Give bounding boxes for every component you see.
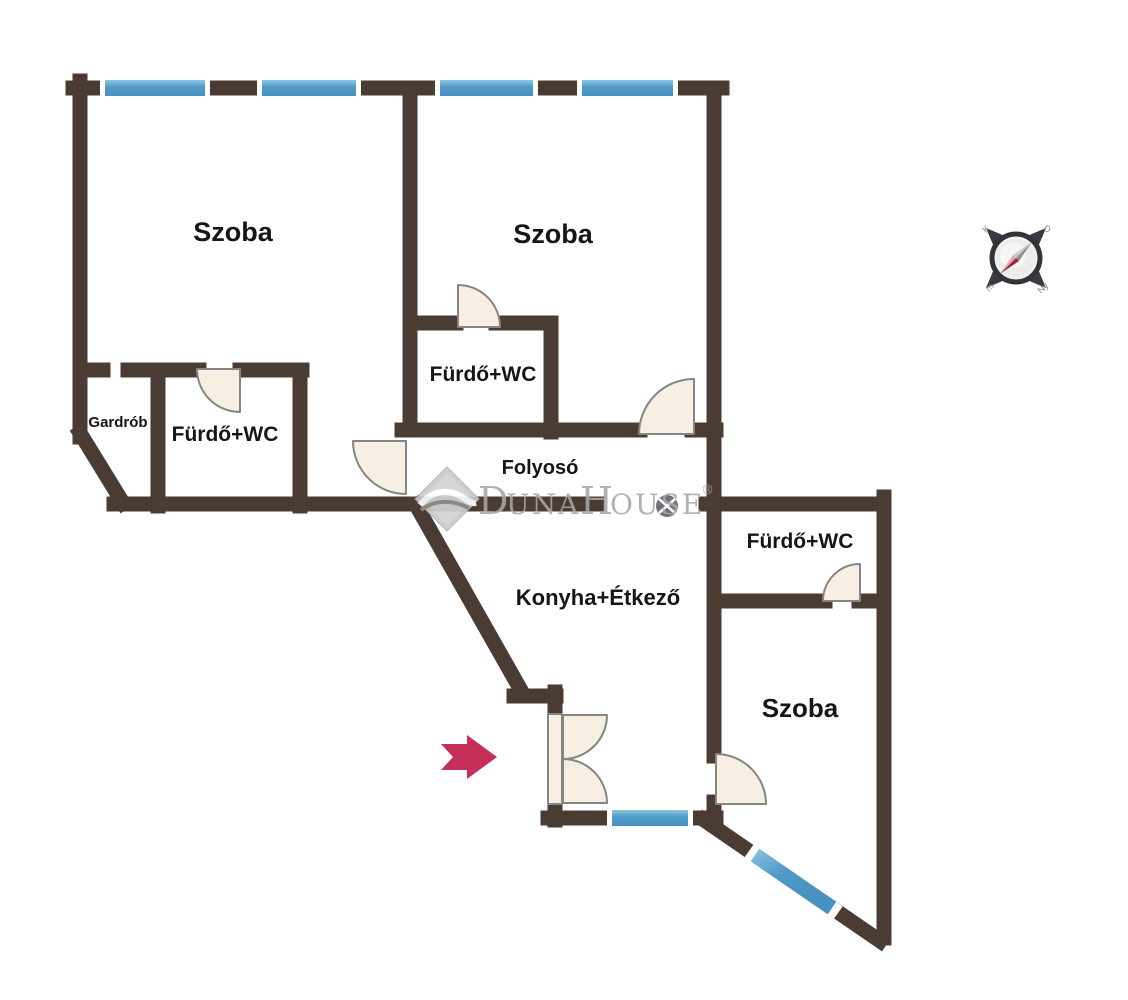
svg-text:®: ® (701, 483, 716, 498)
window (440, 80, 533, 96)
room-label-konyha: Konyha+Étkező (516, 585, 680, 610)
floor-plan: D UNA H OUSE ® Szoba Szoba Fürdő+WC Gard… (0, 0, 1128, 1000)
door-swing-szoba-1 (353, 441, 406, 494)
window (262, 80, 356, 96)
room-label-folyoso: Folyosó (502, 457, 579, 479)
svg-text:UNA: UNA (506, 488, 580, 521)
room-label-furdo-middle: Fürdő+WC (430, 363, 537, 386)
compass-letter-sw: É (984, 282, 995, 293)
compass-icon: K D É Ny (980, 223, 1053, 295)
room-label-szoba-3: Szoba (762, 693, 839, 723)
door-swing-bath-middle (458, 285, 500, 327)
floor-plan-page: D UNA H OUSE ® Szoba Szoba Fürdő+WC Gard… (0, 0, 1128, 1000)
entrance-arrow-icon (441, 735, 497, 779)
door-swing-szoba-2 (639, 379, 694, 434)
door-swing-bath-right (823, 564, 860, 601)
window (582, 80, 673, 96)
room-label-furdo-left: Fürdő+WC (172, 423, 279, 446)
room-label-szoba-2: Szoba (513, 219, 593, 249)
entrance-door-swing-top (563, 715, 607, 759)
svg-text:OUSE: OUSE (610, 488, 704, 521)
window (612, 810, 688, 826)
entrance-door-leaf (548, 714, 562, 804)
window (751, 849, 836, 914)
room-label-szoba-1: Szoba (193, 217, 273, 247)
room-label-gardrob: Gardrób (88, 414, 147, 431)
window (100, 80, 105, 96)
door-swing-bath-left (197, 369, 240, 412)
entrance-door-swing-bottom (563, 759, 607, 803)
room-label-furdo-right: Fürdő+WC (747, 530, 854, 553)
window (105, 80, 205, 96)
watermark-text: D UNA H OUSE ® (478, 479, 716, 523)
door-swing-szoba-3 (716, 754, 766, 804)
